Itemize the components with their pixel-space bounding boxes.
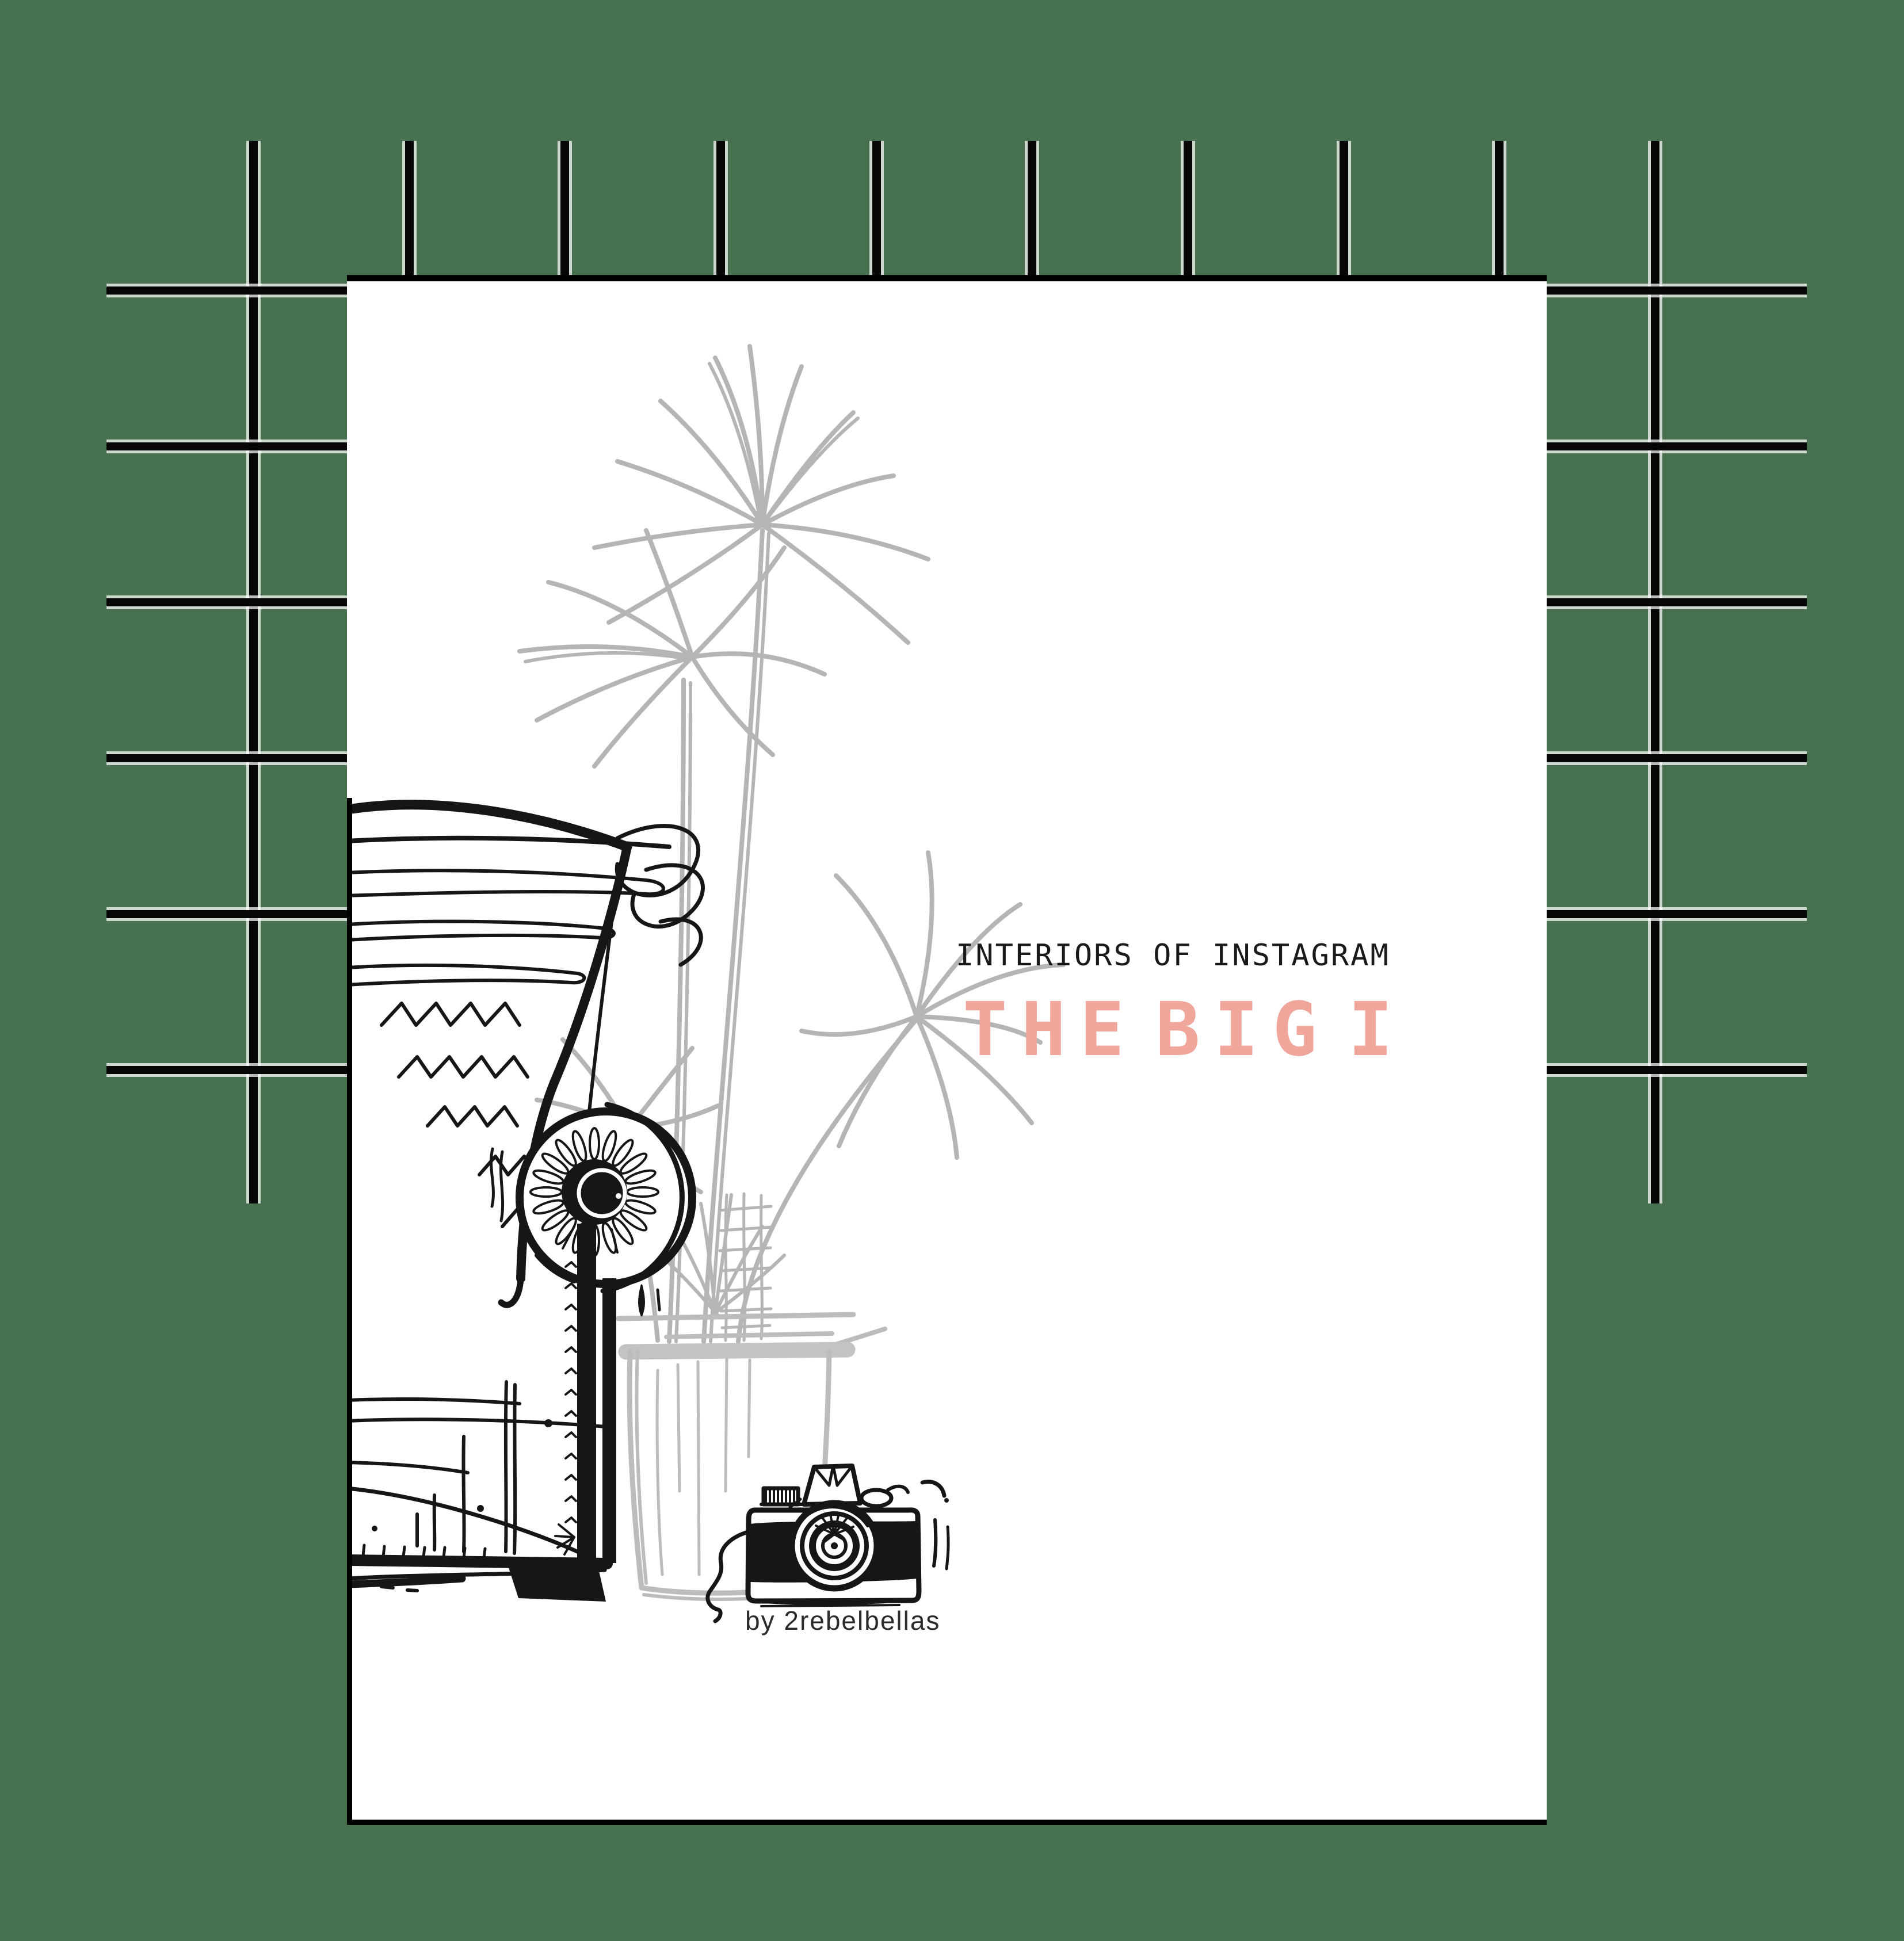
grid-vertical-line: [249, 141, 258, 1203]
title-word-big: BIG: [1155, 989, 1331, 1071]
grid-intersection: [249, 754, 258, 762]
title-word-i: I: [1348, 989, 1407, 1071]
grid-intersection: [249, 442, 258, 450]
poster-background: { "page": { "kicker": "INTERIORS OF INST…: [0, 0, 1904, 1941]
page-bottom-edge: [347, 1820, 1547, 1825]
cover-page: INTERIORS OF INSTAGRAM THE BIG I by 2reb…: [347, 277, 1547, 1825]
grid-intersection: [1651, 1066, 1659, 1074]
grid-intersection: [1651, 910, 1659, 918]
title-word-the: THE: [963, 989, 1138, 1071]
byline: by 2rebelbellas: [745, 1606, 940, 1636]
grid-intersection: [249, 286, 258, 295]
page-top-edge: [347, 275, 1547, 281]
grid-vertical-line: [1651, 141, 1659, 1203]
armchair-sketch: [347, 805, 703, 1602]
grid-intersection: [249, 598, 258, 606]
grid-intersection: [249, 910, 258, 918]
grid-intersection: [249, 1066, 258, 1074]
grid-intersection: [1651, 442, 1659, 450]
page-left-edge: [347, 798, 352, 1825]
grid-intersection: [1651, 286, 1659, 295]
grid-intersection: [1651, 598, 1659, 606]
kicker: INTERIORS OF INSTAGRAM: [956, 938, 1390, 973]
main-title: THE BIG I: [963, 989, 1407, 1071]
grid-intersection: [1651, 754, 1659, 762]
